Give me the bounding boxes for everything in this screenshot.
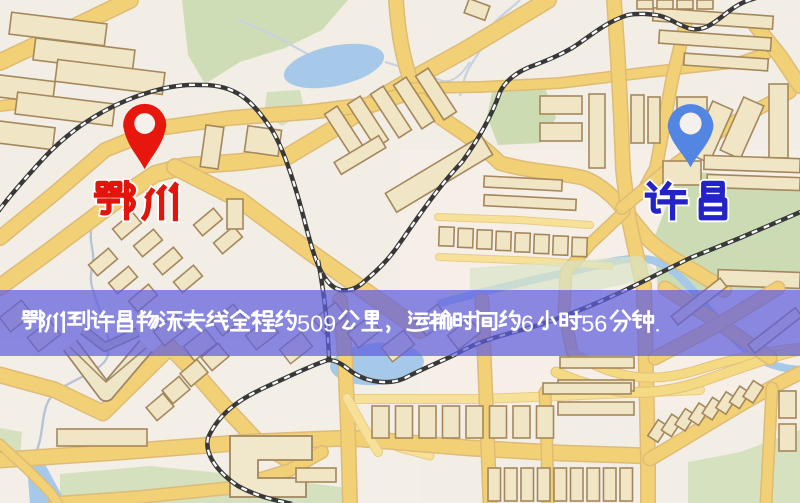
svg-text:6: 6 [521, 311, 534, 337]
svg-text:56: 56 [581, 311, 607, 337]
svg-text:.: . [654, 311, 661, 337]
svg-text:509: 509 [297, 311, 336, 337]
